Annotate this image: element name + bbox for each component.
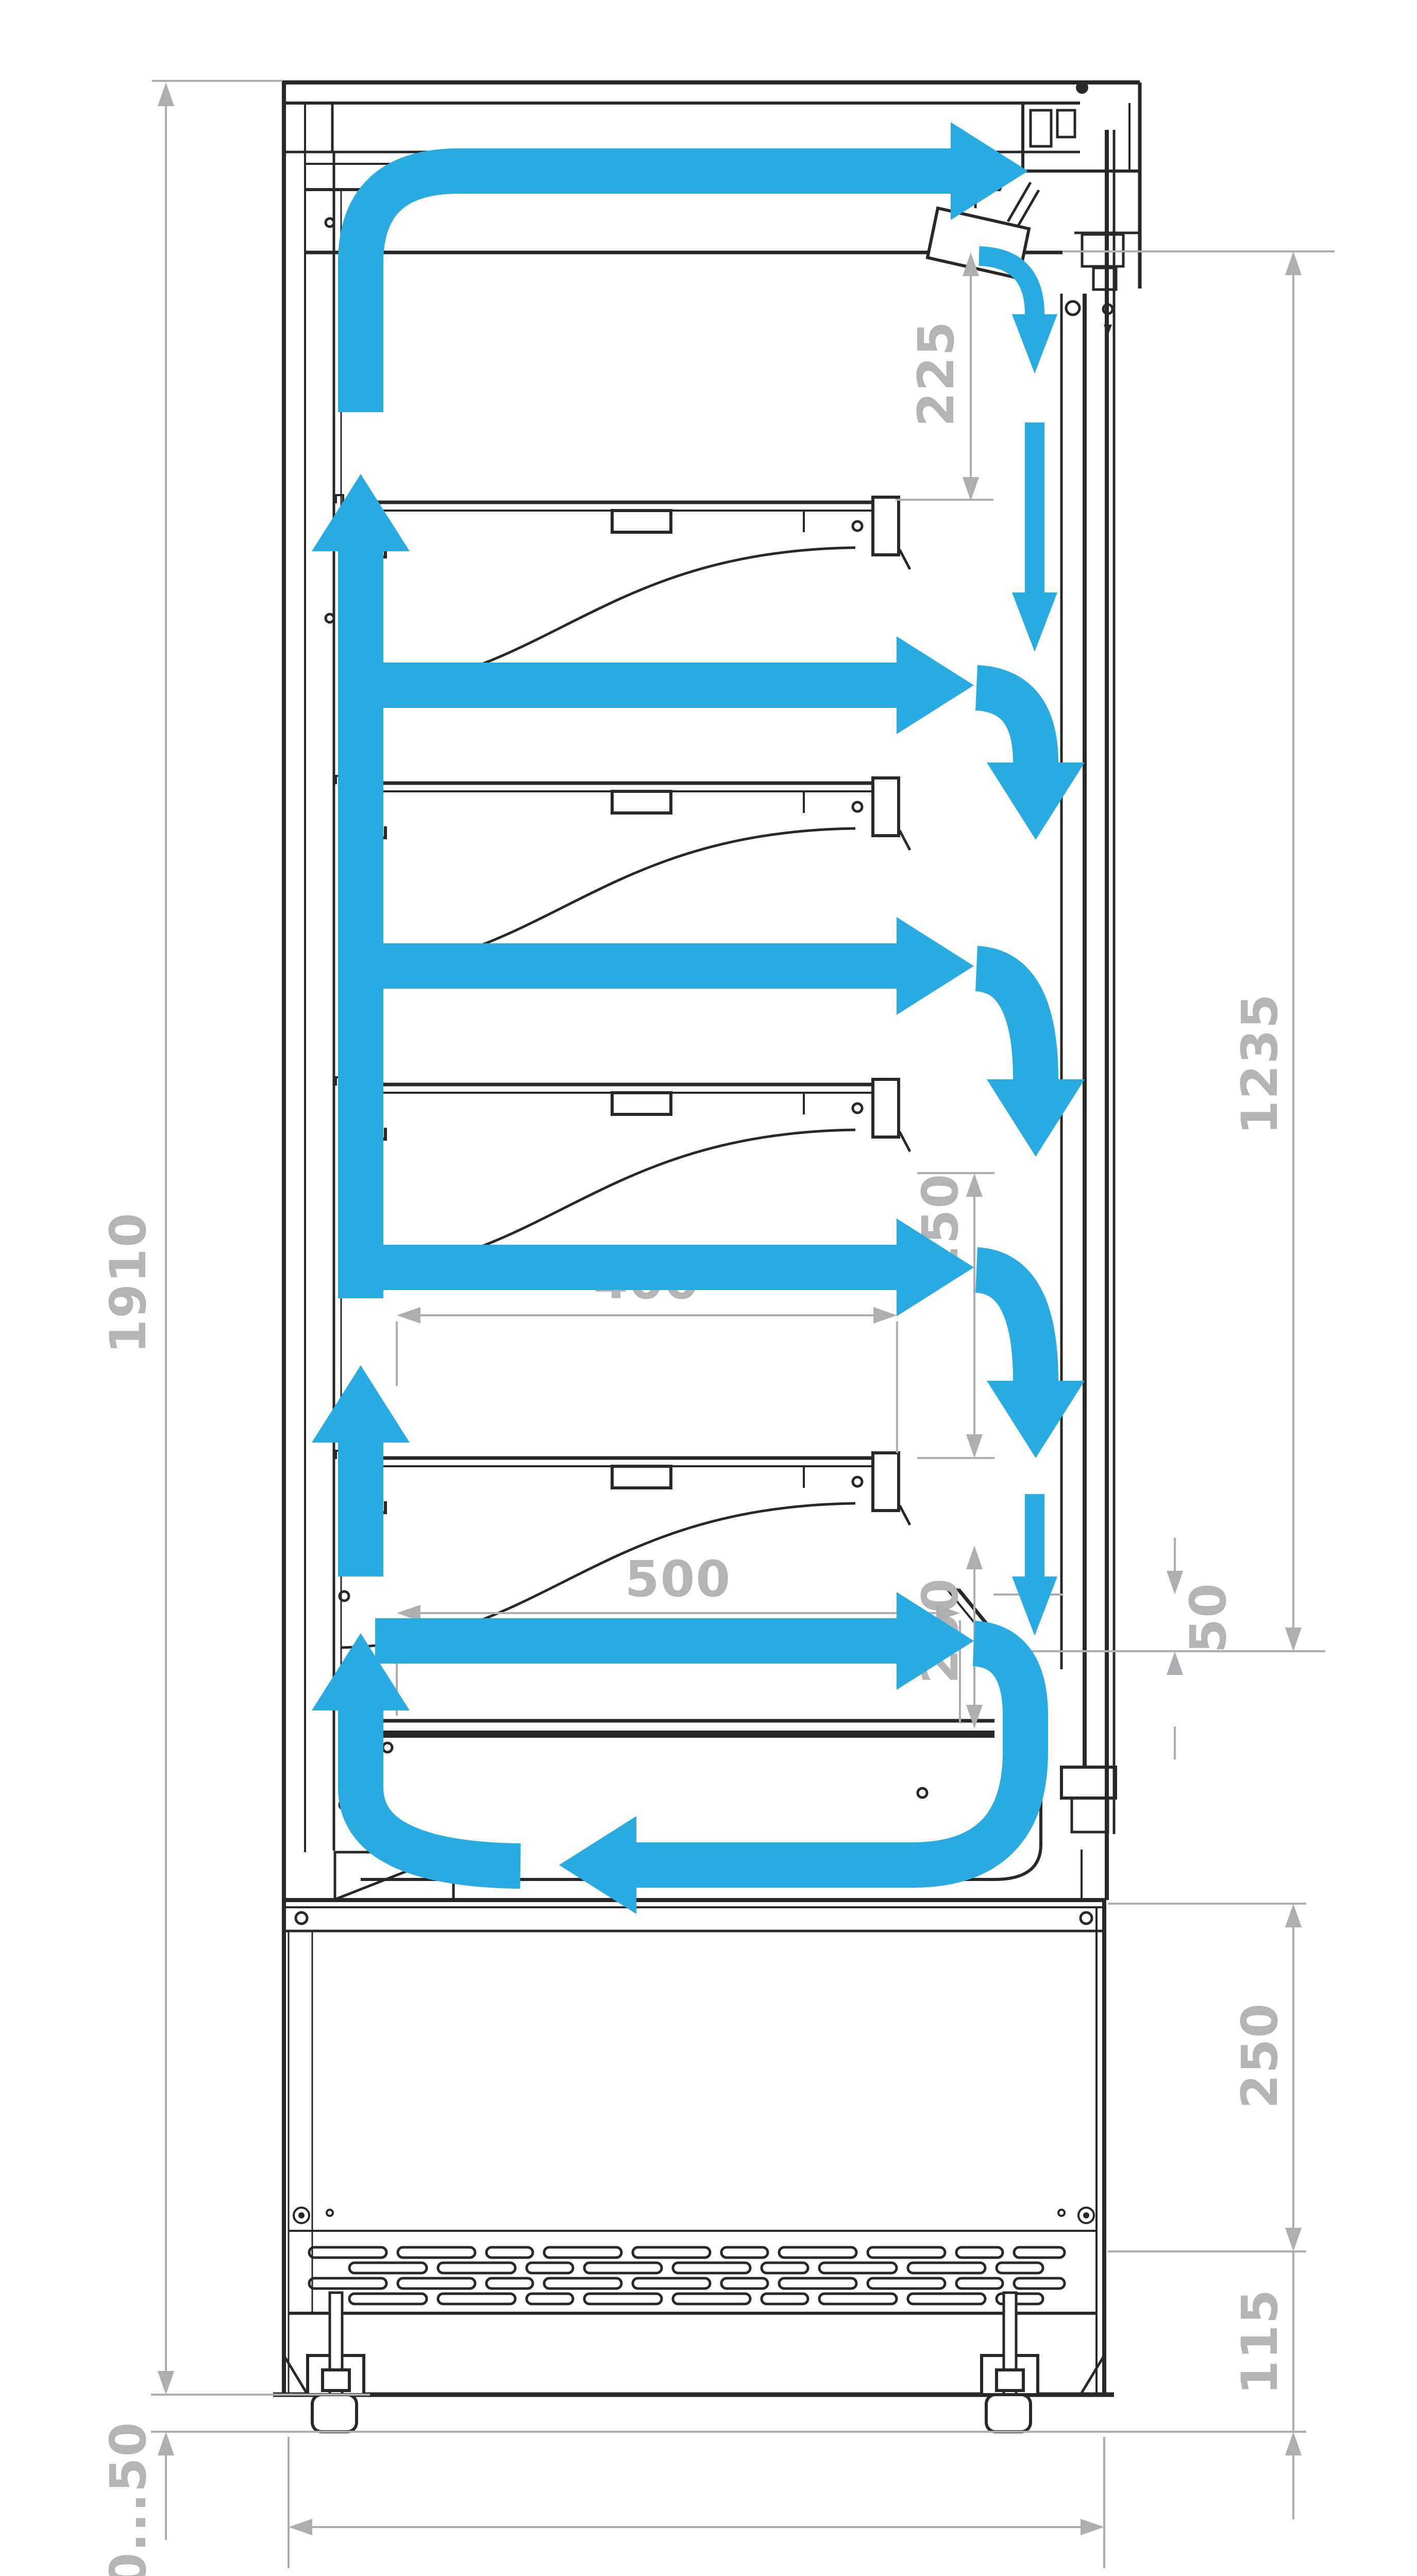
dim-base-height: 250 [1231,1904,1302,2251]
dim-shelf-gap-upper: 250 [912,1173,983,1458]
dim-label-115: 115 [1231,2289,1289,2395]
air-straightener [1008,182,1031,222]
ventilation-grille [309,2247,1065,2304]
dim-label-1910: 1910 [99,1212,157,1353]
dim-label-250-base: 250 [1231,2003,1289,2109]
dim-label-1235: 1235 [1231,993,1289,1134]
cabinet-cross-section-diagram: 1910 30...50 700 225 1235 [0,0,1417,2576]
dim-label-30-50: 30...50 [99,2421,157,2576]
dim-top-gap: 225 [907,252,979,501]
base-machine-compartment [273,1852,1114,2432]
canopy-knob [1076,81,1088,94]
dim-label-225: 225 [907,320,965,427]
dim-deck-depth: 500 [397,1550,960,1621]
dim-feet-range: 30...50 [99,2318,174,2576]
dim-overall-depth: 700 [289,2519,1104,2576]
drawing-canvas: 1910 30...50 700 225 1235 [0,0,1417,2576]
dim-label-50: 50 [1179,1582,1237,1653]
dim-overall-height: 1910 [99,82,174,2395]
dim-label-500: 500 [625,1550,731,1608]
dim-label-700: 700 [663,2574,769,2576]
dim-opening-height: 1235 [1231,251,1302,1651]
airflow-top-duct [361,171,951,412]
dim-plinth-height: 115 [1231,2251,1302,2519]
airflow-curtain-start [979,256,1035,314]
dim-return-slot: 50 [1167,1538,1237,1759]
